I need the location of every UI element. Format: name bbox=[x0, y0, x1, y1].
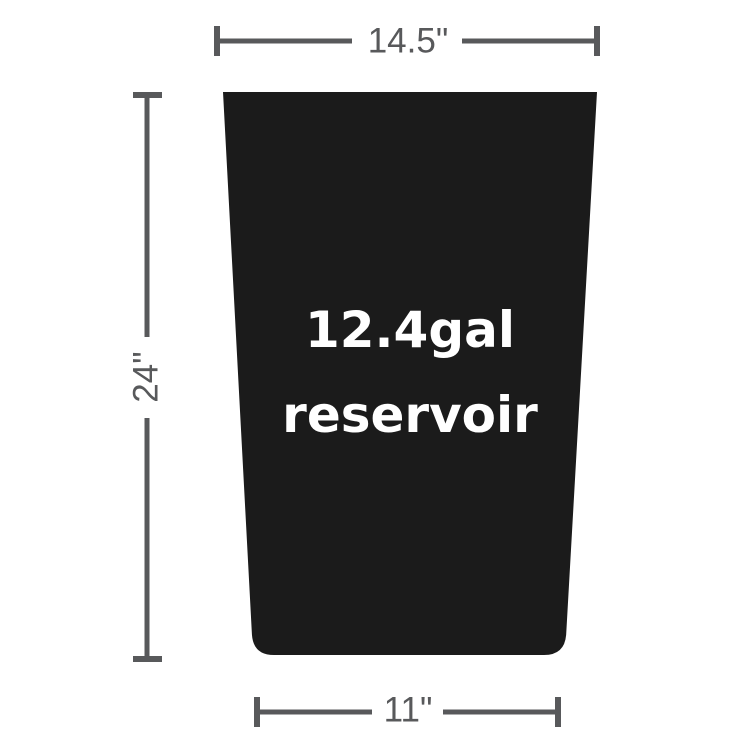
reservoir-shape bbox=[223, 92, 597, 655]
reservoir-capacity-label: 12.4gal bbox=[305, 301, 515, 359]
diagram-canvas: 12.4gal reservoir 14.5" 24" 11" bbox=[0, 0, 750, 750]
top-width-value: 14.5" bbox=[368, 22, 449, 61]
reservoir-word-label: reservoir bbox=[282, 386, 538, 444]
height-dimension: 24" bbox=[127, 95, 166, 659]
bottom-width-value: 11" bbox=[384, 691, 433, 730]
bottom-width-dimension: 11" bbox=[257, 691, 558, 730]
top-width-dimension: 14.5" bbox=[217, 22, 597, 61]
reservoir-dimension-diagram: 12.4gal reservoir 14.5" 24" 11" bbox=[0, 0, 750, 750]
height-value: 24" bbox=[127, 351, 166, 402]
